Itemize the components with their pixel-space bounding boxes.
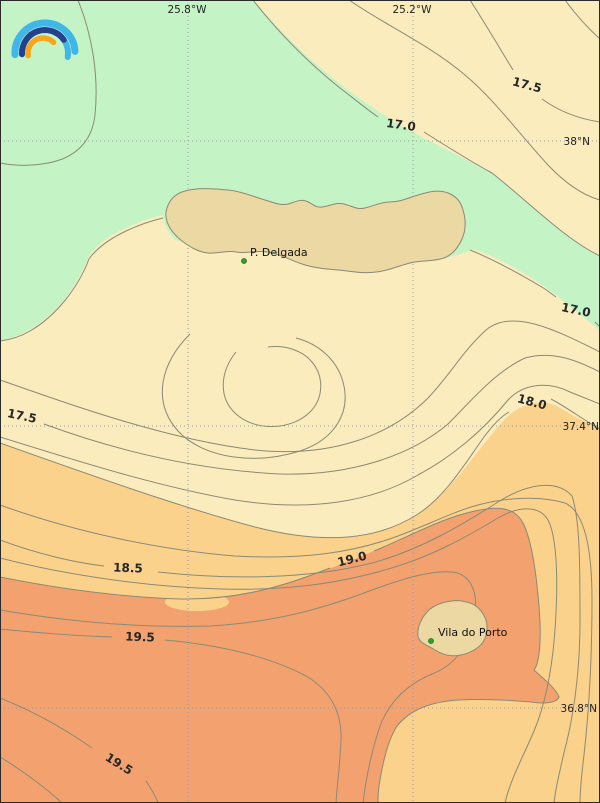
logo-arc-lightblue-small [65, 42, 68, 58]
map-canvas: P. Delgada Vila do Porto 17.5 17.0 17.0 … [0, 0, 600, 803]
p-delgada-marker-dot [241, 258, 246, 263]
cool-pocket-in-warm-band [165, 593, 229, 611]
p-delgada-label: P. Delgada [250, 246, 308, 259]
contour-label-19.5-upper: 19.5 [125, 629, 155, 644]
vila-do-porto-label: Vila do Porto [438, 626, 508, 639]
lat-label-36.8n: 36.8°N [561, 703, 597, 715]
sst-contour-map: P. Delgada Vila do Porto 17.5 17.0 17.0 … [0, 0, 600, 803]
vila-do-porto-marker-dot [428, 638, 433, 643]
lat-label-38n: 38°N [564, 136, 590, 148]
lat-label-37.4n: 37.4°N [563, 421, 599, 433]
lon-label-25.2w: 25.2°W [392, 4, 432, 16]
lon-label-25.8w: 25.8°W [167, 4, 207, 16]
contour-label-18.5: 18.5 [113, 560, 143, 575]
